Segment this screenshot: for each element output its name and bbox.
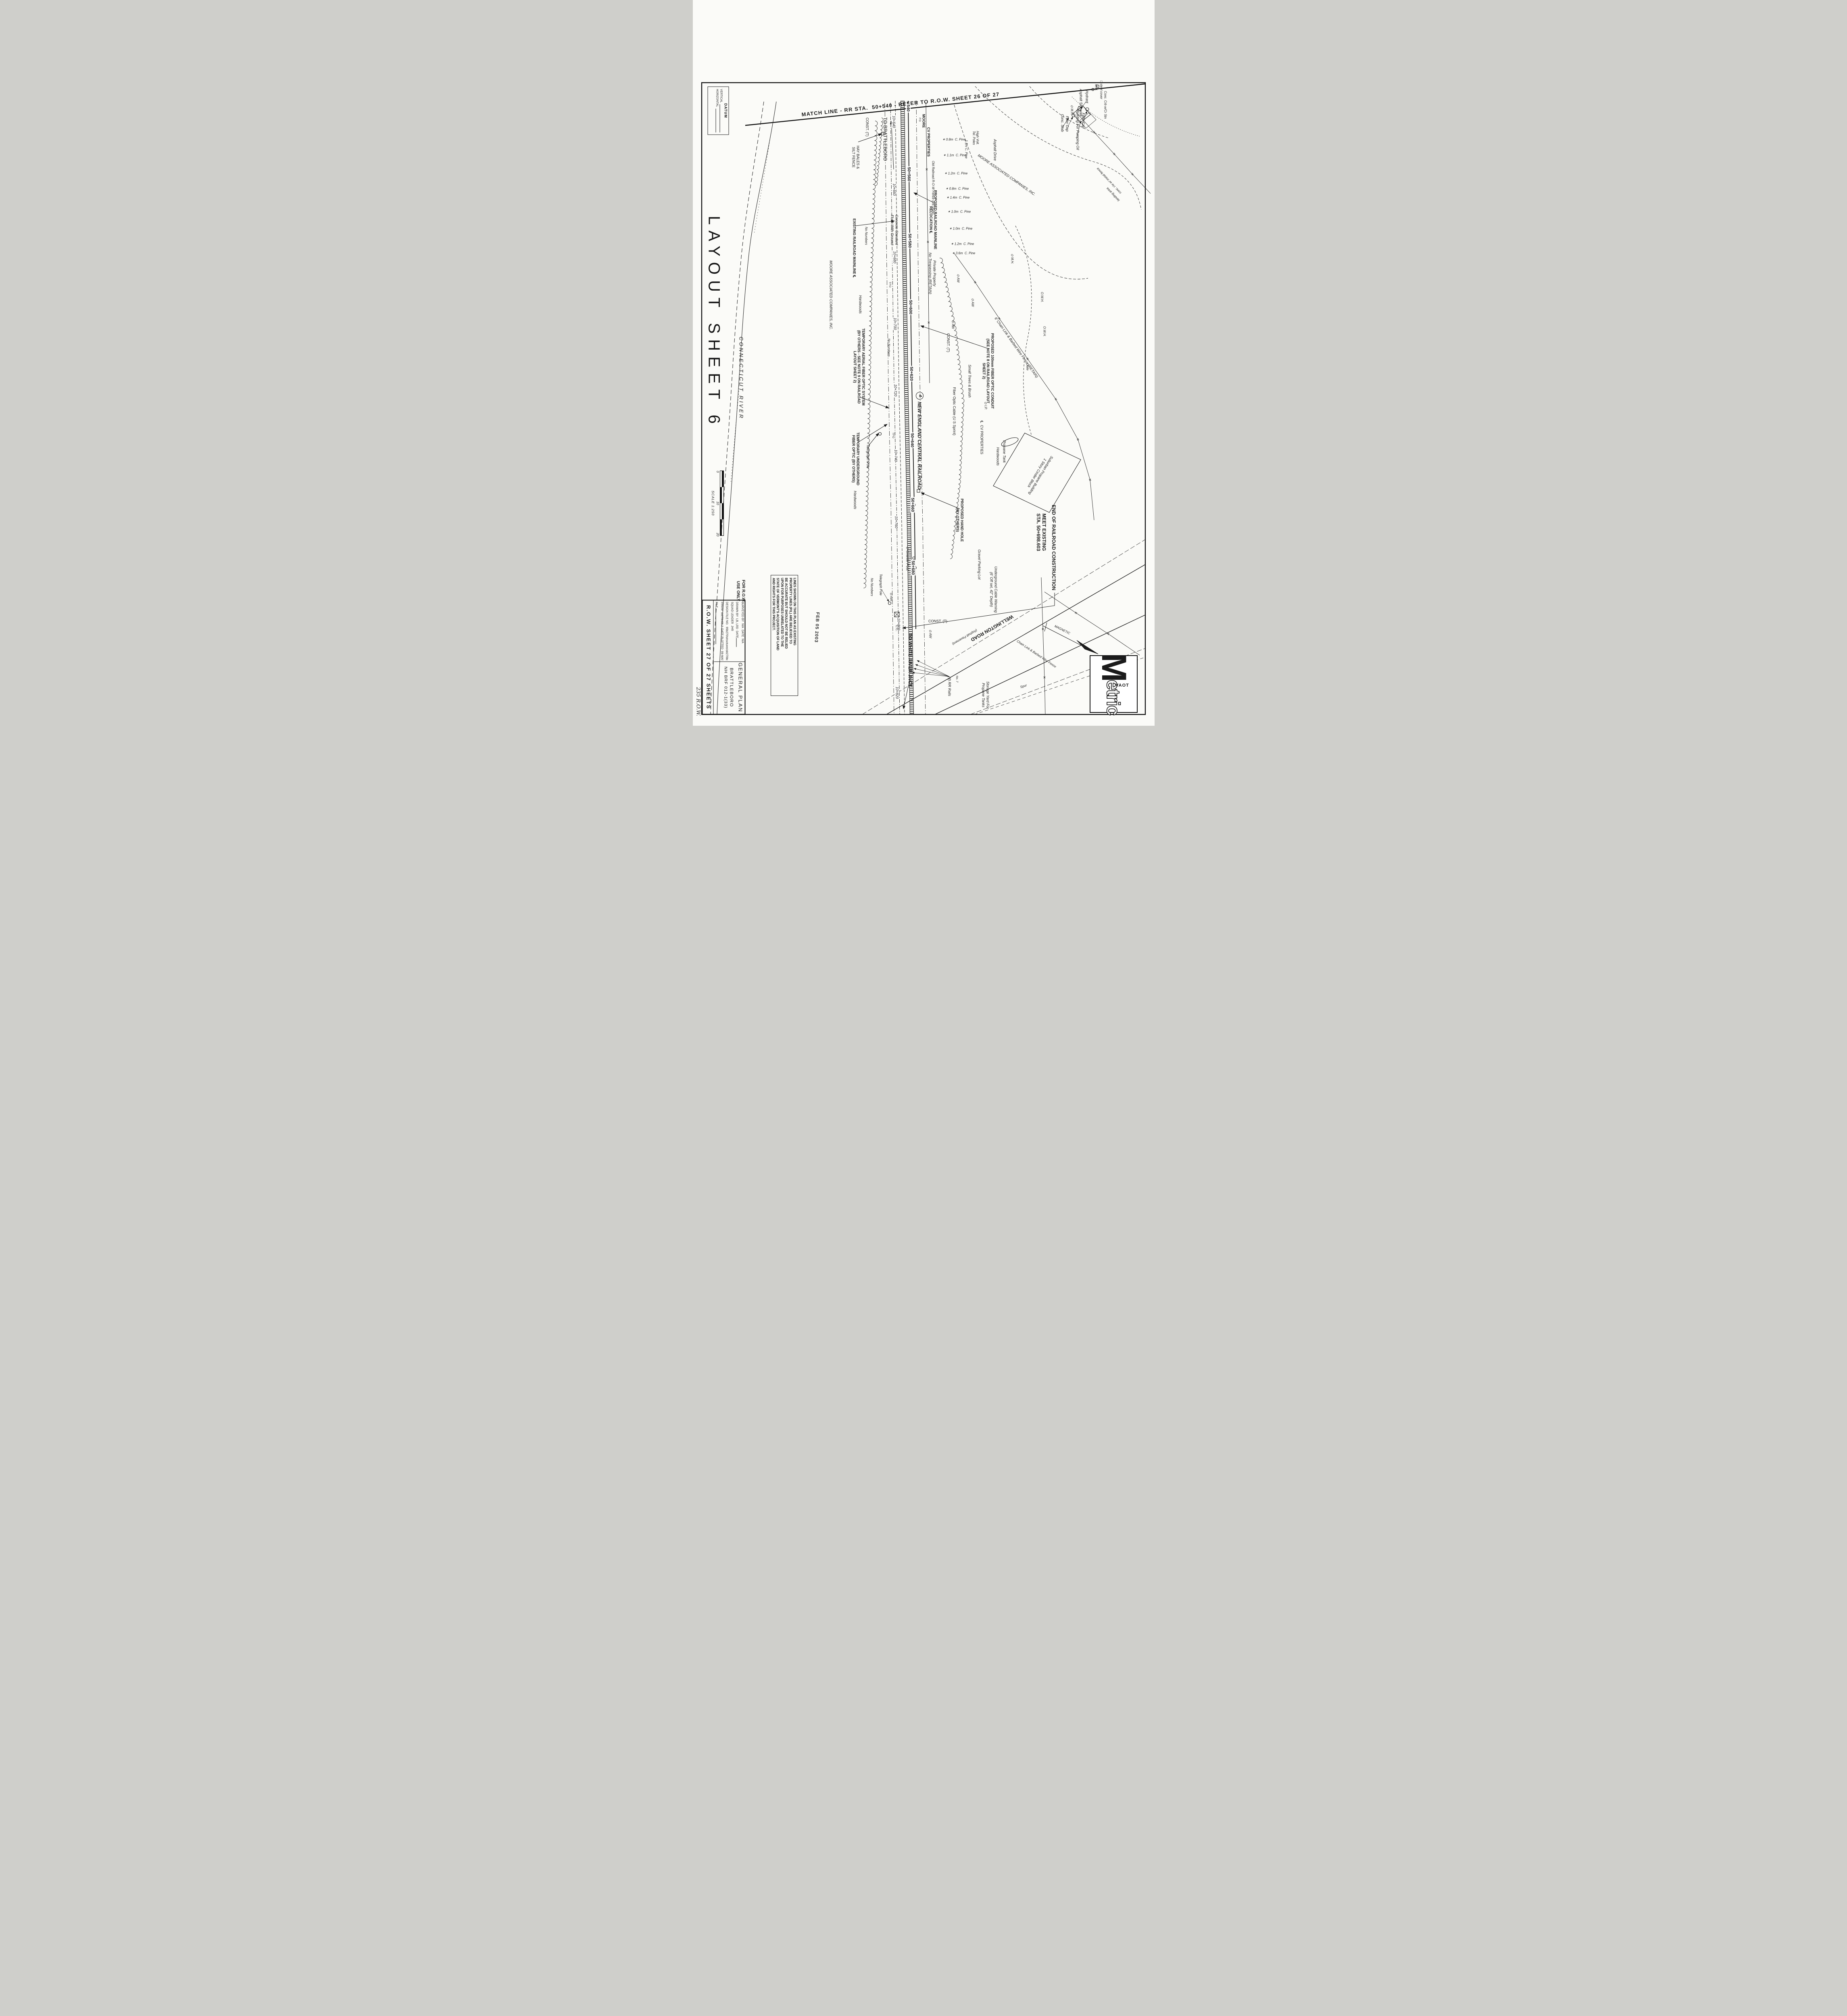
aw-1: ⊙ AW — [956, 274, 960, 282]
cc-symbol — [894, 612, 899, 617]
hand-hole-symbol — [917, 489, 920, 492]
drawn-date-label: DATE — [735, 631, 738, 638]
cv-properties-2: ℄ CV PROPERTIES — [979, 421, 984, 454]
pine-9: ✶ 3.6m C. Pine — [952, 251, 975, 255]
parcel-curve-2 — [1015, 226, 1032, 435]
chainage-10-760: 10+760 — [894, 516, 898, 529]
telegraph-pole-1: Telegraph Pole — [865, 444, 870, 469]
project-number: NH BRF 012-1(33) — [723, 662, 728, 713]
hardwoods-3: Hardwoods — [853, 491, 857, 509]
fiber-conduit-note: PROPOSED 100mm FIBER OPTIC CONDUIT (SEE … — [982, 333, 994, 409]
chainage-10-700: 10+700 — [892, 317, 897, 330]
tfo-mark-2: TFO — [891, 433, 894, 439]
surveyed-date-value: N/A — [741, 638, 744, 644]
chainage-10-640: 10+640 — [891, 115, 896, 128]
aw-5: ⊙ AW — [928, 629, 932, 638]
const-t-upper: CONST. (T) — [865, 118, 869, 137]
river-label: CONNECTICUT RIVER — [738, 337, 744, 420]
to-brattleboro: TO BRATTLEBORO — [882, 117, 888, 161]
chainage-10-660: 10+660 — [892, 183, 896, 196]
pine-1: ✶ 0.8m C. Pine — [942, 137, 965, 141]
scale-tick-20: 20 — [716, 533, 719, 537]
metric-logo: Metric VAOT — [1090, 655, 1138, 713]
iron-pin: ⊙ I.P. — [984, 402, 987, 410]
plot-date-label: DATE PLOTTED — [720, 628, 723, 649]
sheet-title: LAYOUT SHEET 6 — [704, 216, 723, 429]
hardwoods-1: Hardwoods — [858, 295, 862, 314]
aw-3: ⊙ AW — [951, 320, 955, 329]
concrete-standard: Concrete Standard Flush With Ground — [890, 215, 898, 245]
telegraph-pole-symbol-2 — [888, 602, 891, 605]
pine-5: ✶ 1.4m C. Pine — [946, 196, 969, 199]
station-50-680: 50+680 — [910, 560, 915, 575]
cv-properties-1: CV PROPERTIES — [926, 127, 930, 156]
temp-aerial-fiber: TEMPORARY AERIAL FIBER OPTIC SYSTEM (BY … — [853, 328, 865, 406]
tfo-mark-1: TFO — [888, 282, 891, 288]
squad-leader-label: SQUAD LEADER — [730, 602, 733, 624]
title-block: SURVEYED BY N/A DATE N/A DRAWN BY LB, LR… — [702, 600, 745, 715]
meet-existing: MEET EXISTING STA. 50+698.603 — [1035, 513, 1046, 551]
const-t-mid: CONST. (T) — [946, 333, 950, 352]
title-block-credits: SURVEYED BY N/A DATE N/A DRAWN BY LB, LR… — [714, 601, 744, 662]
gravel-parking-lot: Gravel Parking Lot — [977, 550, 981, 580]
proposed-relocation: PROPOSED RAILROAD MAINLINE RELOCATION ℄ — [929, 190, 937, 249]
plan-sheet: MATCH LINE - RR STA. 50+540 - REFER TO R… — [693, 0, 1155, 726]
chain-link-fence-6ft-line — [954, 253, 1094, 520]
steel-cover: □ steel cover — [1099, 81, 1103, 99]
title-block-project: GENERAL PLAN BRATTLEBORO NH BRF 012-1(33… — [714, 662, 744, 713]
drawn-by-label: DRAWN BY — [735, 602, 738, 617]
datum-box: DATUM VERTICAL HORIZONTAL — [707, 87, 729, 135]
metric-logo-m: M — [1101, 653, 1127, 681]
design-file-value: 95b270\structures\sb270bd3.dgn — [725, 626, 728, 660]
no-numbers-2: No Numbers — [887, 339, 890, 357]
station-50-560: 50+560 — [906, 166, 911, 182]
vaot-label: VAOT — [1115, 683, 1129, 688]
squad-leader-value: JHR — [730, 625, 733, 632]
plot-date-value: 09-MAR-2001 — [720, 650, 723, 660]
private-property: Private Property No Trespassing (RETAIN) — [928, 252, 936, 294]
to-white-river-jnct: TO WHITE RIVER JNCT. — [907, 633, 913, 687]
railroad-track — [885, 101, 930, 714]
scale-tick-0: 0 — [716, 471, 719, 473]
file-label: FILE — [715, 602, 717, 608]
gate: Gate — [1026, 363, 1029, 370]
datum-vertical-label: VERTICAL — [719, 89, 722, 103]
pine-2: ✶ 1.1m C. Pine — [943, 153, 966, 157]
iparm-value: sb270ri06.J — [720, 611, 723, 627]
design-file-label: DESIGN FILE NO. — [725, 602, 728, 625]
existing-mainline: EXISTING RAILROAD MAINLINE ℄ — [852, 219, 856, 277]
handwritten-note: 235 R.O.W. — [695, 687, 701, 716]
surveyed-by-value: N/A — [741, 623, 744, 629]
asphalt-drive: Asphalt Drive — [992, 139, 997, 161]
pine-3: ✶ 1.2m C. Pine — [944, 171, 967, 175]
high-volt-poles: High Volt. Tel. Poles — [971, 131, 979, 145]
manhole-1: M.H. — [1094, 84, 1098, 91]
chainage-10-740: 10+740 — [893, 449, 898, 462]
small-trees-brush: Small Trees & Brush — [967, 364, 971, 398]
surveyed-by-label: SURVEYED BY — [741, 602, 744, 622]
propane-tank: Propane Tank — [1002, 440, 1006, 463]
pine-8: ✶ 1.2m C. Pine — [951, 242, 974, 246]
storage-yard: Storage Yard For Propane Tanks — [981, 681, 990, 709]
chainage-10-820: 10+820 — [894, 686, 899, 699]
station-50-620: 50+620 — [909, 366, 913, 381]
const-t-bottom: CONST. (T) — [928, 619, 947, 624]
building-pumping-oil: Building For Pumping Oil — [1075, 110, 1080, 150]
temp-underground-fiber: TEMPORARY UNDERGROUND FIBER OPTIC (BY OT… — [851, 432, 860, 485]
hardwoods-2: Hardwoods — [995, 447, 1000, 466]
underground-cable-warning: Underground Cable Warning (6' Off set, 4… — [989, 566, 998, 612]
north-arrow — [1043, 623, 1098, 654]
station-50-580: 50+580 — [907, 233, 912, 248]
aw-2: ⊙ AW — [971, 298, 974, 306]
chainage-10-680: 10+680 — [892, 251, 896, 264]
town-name: BRATTLEBORO — [729, 662, 734, 713]
telegraph-pole-symbol-1 — [878, 433, 881, 435]
sheet-frame — [702, 83, 1145, 714]
chainage-10-720: 10+720 — [893, 384, 897, 397]
filler-cap-2: Filler Cap — [1065, 116, 1069, 132]
scale-bar: 0 10 20 SCALE 1:250 — [707, 469, 725, 537]
metal-fence-line — [1076, 112, 1151, 194]
owh-2: O.W.H. — [1042, 326, 1046, 337]
rr-rails: (4) RR Rails — [947, 676, 951, 696]
no-numbers-3: No Numbers — [870, 578, 873, 596]
station-50-660: 50+660 — [910, 497, 915, 512]
granite-post: ⊙ Granite Post — [905, 546, 909, 571]
owh-1: O.W.H. — [1040, 292, 1044, 302]
scale-tick-10: 10 — [716, 502, 719, 505]
fiber-optic-cable: Fiber Optic Cable (U S Sprint) — [952, 387, 956, 435]
storage-yard-fence — [1041, 577, 1045, 714]
row-sheet-number: R.O.W. SHEET 27 OF 27 SHEETS — [703, 601, 713, 714]
new-england-central: NEW ENGLAND CENTRAL RAILROAD — [916, 402, 922, 489]
proposed-hand-hole: PROPOSED HAND HOLE (BY OTHERS) — [955, 498, 964, 541]
plan-linework — [693, 0, 1155, 726]
pine-rotated: 1.1m C. Pine — [964, 140, 968, 158]
moore-tag: MOORE — [921, 114, 926, 128]
fences — [954, 112, 1151, 714]
datum-title: DATUM — [723, 89, 728, 133]
general-plan-title: GENERAL PLAN — [737, 662, 743, 713]
manhole-2: ⊙ M.H. — [1070, 105, 1074, 115]
scale-label: SCALE 1:250 — [711, 469, 715, 537]
hydrant: Hydrant — [1084, 90, 1089, 103]
telegraph-pole-2: Telegraph Pole — [879, 574, 882, 596]
pine-4: ✶ 0.8m C. Pine — [946, 187, 969, 190]
filler-cap-1: Filler Cap — [1081, 113, 1085, 129]
propane-fence-line — [1044, 592, 1140, 655]
notes-box: LINES SHOWN ON THIS PLAN AS EXISTING PRO… — [771, 575, 798, 696]
no-numbers-1: No Numbers — [864, 227, 868, 245]
drawn-by-value: LB, LRD — [735, 618, 738, 630]
datum-horizontal-label: HORIZONTAL — [715, 89, 718, 107]
end-of-railroad: END OF RAILROAD CONSTRUCTION — [1051, 505, 1056, 590]
hay-bales: HAY BALES & SILT FENCE — [851, 146, 860, 169]
cc-mark: C.C. — [895, 625, 898, 631]
rail-no-7: No. 7 — [955, 676, 958, 683]
surveyed-date-label: DATE — [741, 630, 744, 637]
leader-arrows — [856, 102, 1087, 709]
aw-4: ⊙ AW — [889, 592, 893, 601]
manhole-3: ⊙ M.H. — [1010, 254, 1014, 264]
conc-slab: Conc. Slab — [1060, 114, 1064, 132]
for-row-use-only: FOR R.O.W. USE ONLY — [735, 580, 745, 602]
conc-curb: Conc. Crb w/Cr Stn — [1103, 91, 1107, 119]
station-50-600: 50+600 — [908, 299, 913, 315]
station-50-540: 540 — [905, 104, 910, 112]
pine-6: ✶ 1.0m C. Pine — [948, 210, 971, 213]
station-50-640: 50+640 — [909, 432, 914, 448]
moore-associated-left: MOORE ASSOCIATED COMPANIES, INC. — [828, 260, 833, 330]
iparm-label: IPARM — [720, 602, 723, 611]
pine-7: ✶ 1.0m C. Pine — [949, 227, 972, 230]
fo-mark: FO — [918, 118, 921, 122]
track-number-badge: 4 — [916, 392, 923, 400]
